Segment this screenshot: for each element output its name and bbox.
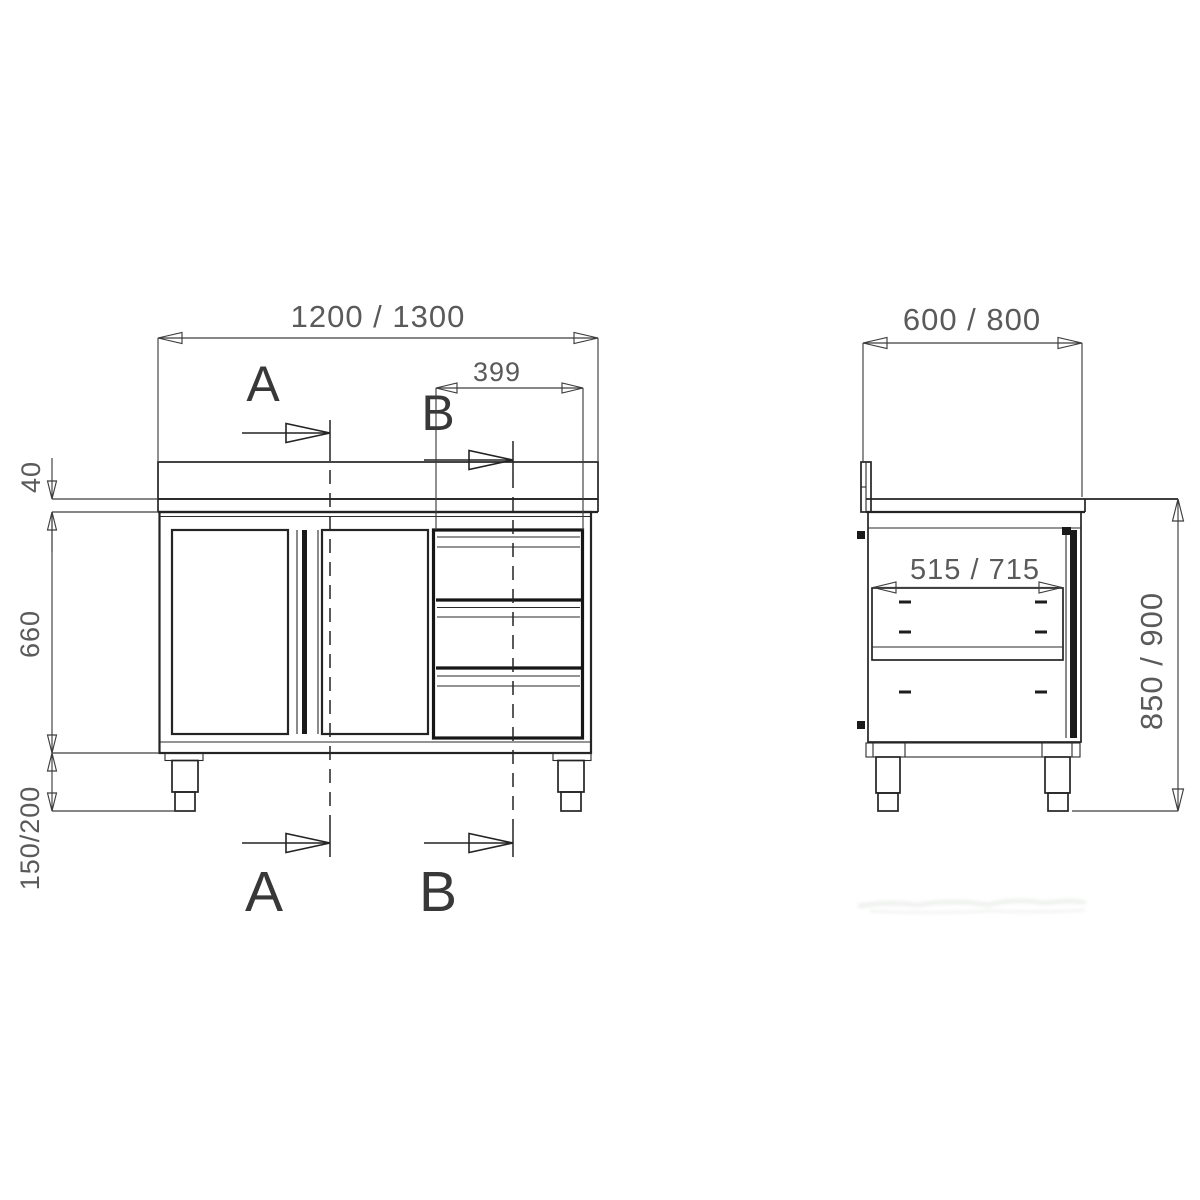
upstand-side-profile [861,462,871,512]
section-arrow-a-bottom [242,834,330,853]
sliding-door-right [322,530,428,734]
dim-drawer-width-text: 399 [473,357,521,387]
technical-drawing-canvas: A B A B 1200 / 1300 399 [0,0,1200,1200]
side-view: 600 / 800 515 / 715 850 / 900 [857,302,1184,913]
dim-leg-height: 150/200 [15,753,175,890]
base-frame-side [866,743,1080,757]
dim-drawer-width: 399 [436,357,583,530]
dim-body-height: 660 [15,512,159,753]
drawer-1 [436,537,581,600]
dim-side-depth-text: 600 / 800 [903,302,1041,337]
leg-side-front [1045,757,1070,811]
dim-inner-depth: 515 / 715 [873,554,1062,593]
dim-leg-height-text: 150/200 [15,786,45,891]
front-view: A B A B 1200 / 1300 399 [15,299,598,924]
section-label-b-top: B [421,385,454,441]
worktop-side [866,499,1178,512]
dim-side-depth: 600 / 800 [863,302,1082,497]
drawing-svg: A B A B 1200 / 1300 399 [0,0,1200,1200]
drawer-2 [436,608,581,669]
dim-front-width-text: 1200 / 1300 [291,299,466,334]
interior-shelf [872,588,1063,660]
dim-inner-depth-text: 515 / 715 [910,554,1040,586]
leg-front-left [165,754,203,812]
leg-side-back [876,757,900,811]
cabinet-body-side [857,512,1081,742]
door-overlap-gap [297,530,318,734]
watermark [858,901,1085,913]
drawer-3 [437,676,580,686]
dim-worktop-thickness: 40 [16,458,158,552]
section-label-a-bottom: A [245,860,283,924]
dim-overall-height-text: 850 / 900 [1134,592,1169,730]
upstand-front [158,462,598,499]
dim-worktop-thickness-text: 40 [16,461,46,493]
worktop-front [158,499,598,512]
cabinet-body-front [160,512,592,753]
dim-body-height-text: 660 [15,610,45,658]
leg-front-right [553,754,591,812]
section-label-a-top: A [246,356,280,412]
section-arrow-b-bottom [424,834,513,853]
dim-front-width: 1200 / 1300 [158,299,598,462]
sliding-door-left [172,530,288,734]
dim-overall-height: 850 / 900 [1072,499,1184,811]
drawer-stack [434,530,583,738]
section-arrow-b-top [424,451,513,470]
section-label-b-bottom: B [419,860,457,924]
sliding-door-side-profile [1062,527,1077,738]
section-arrow-a-top [242,424,330,443]
